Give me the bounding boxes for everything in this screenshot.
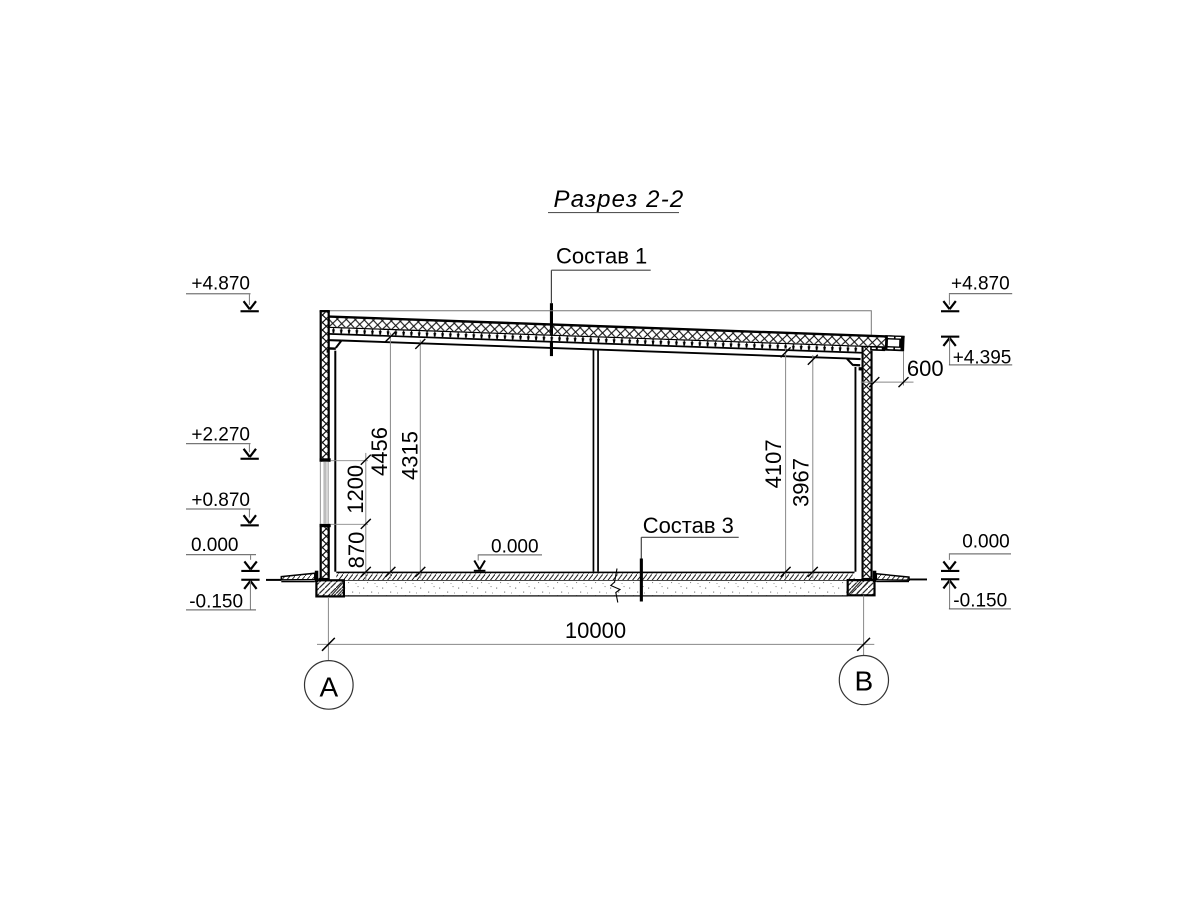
svg-text:4107: 4107	[761, 439, 786, 488]
svg-text:+4.395: +4.395	[953, 348, 1012, 369]
svg-text:-0.150: -0.150	[189, 592, 243, 613]
svg-text:+2.270: +2.270	[191, 425, 250, 446]
svg-text:0.000: 0.000	[191, 535, 239, 556]
svg-text:10000: 10000	[565, 618, 626, 643]
svg-text:600: 600	[907, 356, 944, 381]
svg-text:Состав 3: Состав 3	[643, 513, 734, 538]
svg-text:Разрез 2-2: Разрез 2-2	[554, 186, 685, 213]
svg-text:4315: 4315	[397, 431, 422, 480]
svg-text:-0.150: -0.150	[953, 591, 1007, 612]
svg-text:4456: 4456	[367, 427, 392, 476]
svg-text:1200: 1200	[343, 465, 368, 514]
svg-text:+4.870: +4.870	[951, 273, 1010, 294]
svg-text:В: В	[855, 665, 874, 696]
svg-text:870: 870	[344, 532, 369, 569]
svg-text:0.000: 0.000	[962, 532, 1010, 553]
svg-text:Состав 1: Состав 1	[556, 243, 647, 268]
svg-text:3967: 3967	[789, 458, 814, 507]
svg-text:А: А	[319, 671, 338, 702]
svg-text:+4.870: +4.870	[191, 273, 250, 294]
svg-text:+0.870: +0.870	[191, 490, 250, 511]
svg-text:0.000: 0.000	[491, 536, 539, 557]
